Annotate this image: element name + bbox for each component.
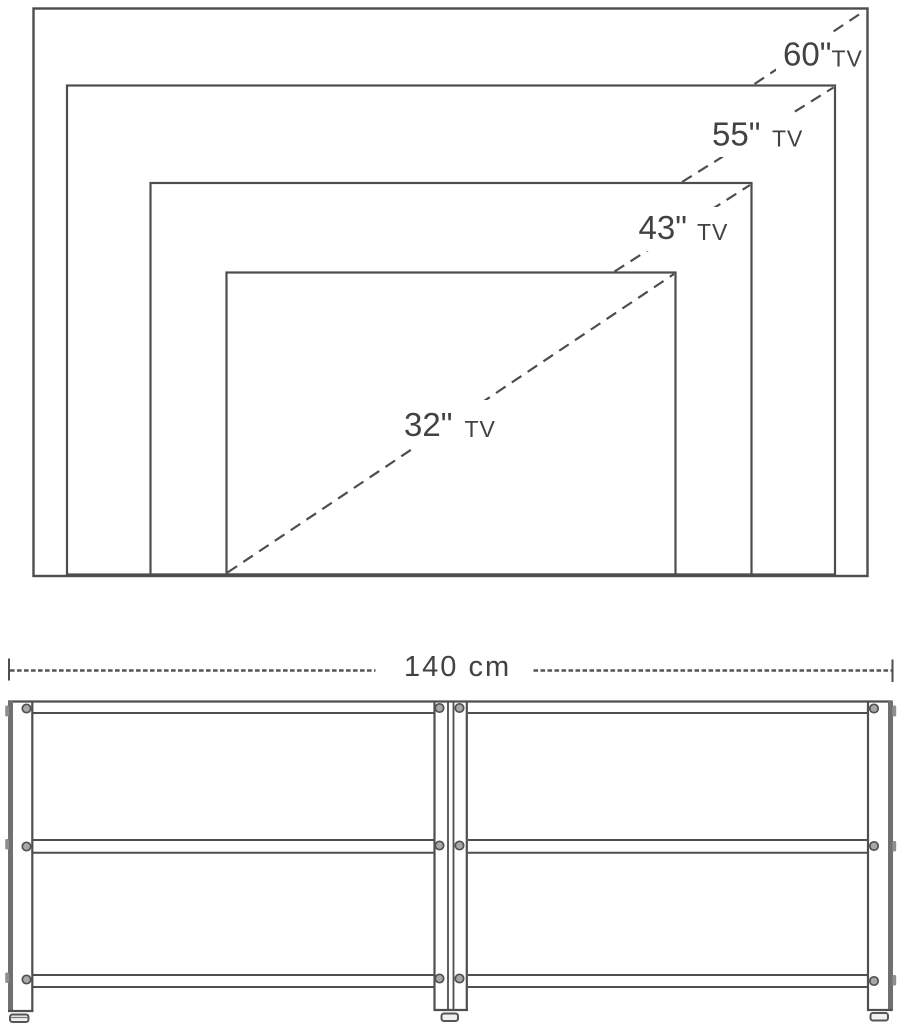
svg-text:140 cm: 140 cm: [404, 651, 511, 683]
svg-text:43": 43": [639, 209, 687, 246]
svg-text:TV: TV: [772, 125, 803, 151]
svg-text:32": 32": [404, 406, 452, 443]
svg-text:55": 55": [712, 115, 760, 152]
svg-text:60": 60": [783, 36, 831, 73]
svg-text:TV: TV: [465, 416, 496, 442]
svg-text:TV: TV: [697, 219, 728, 245]
svg-text:TV: TV: [832, 46, 863, 72]
